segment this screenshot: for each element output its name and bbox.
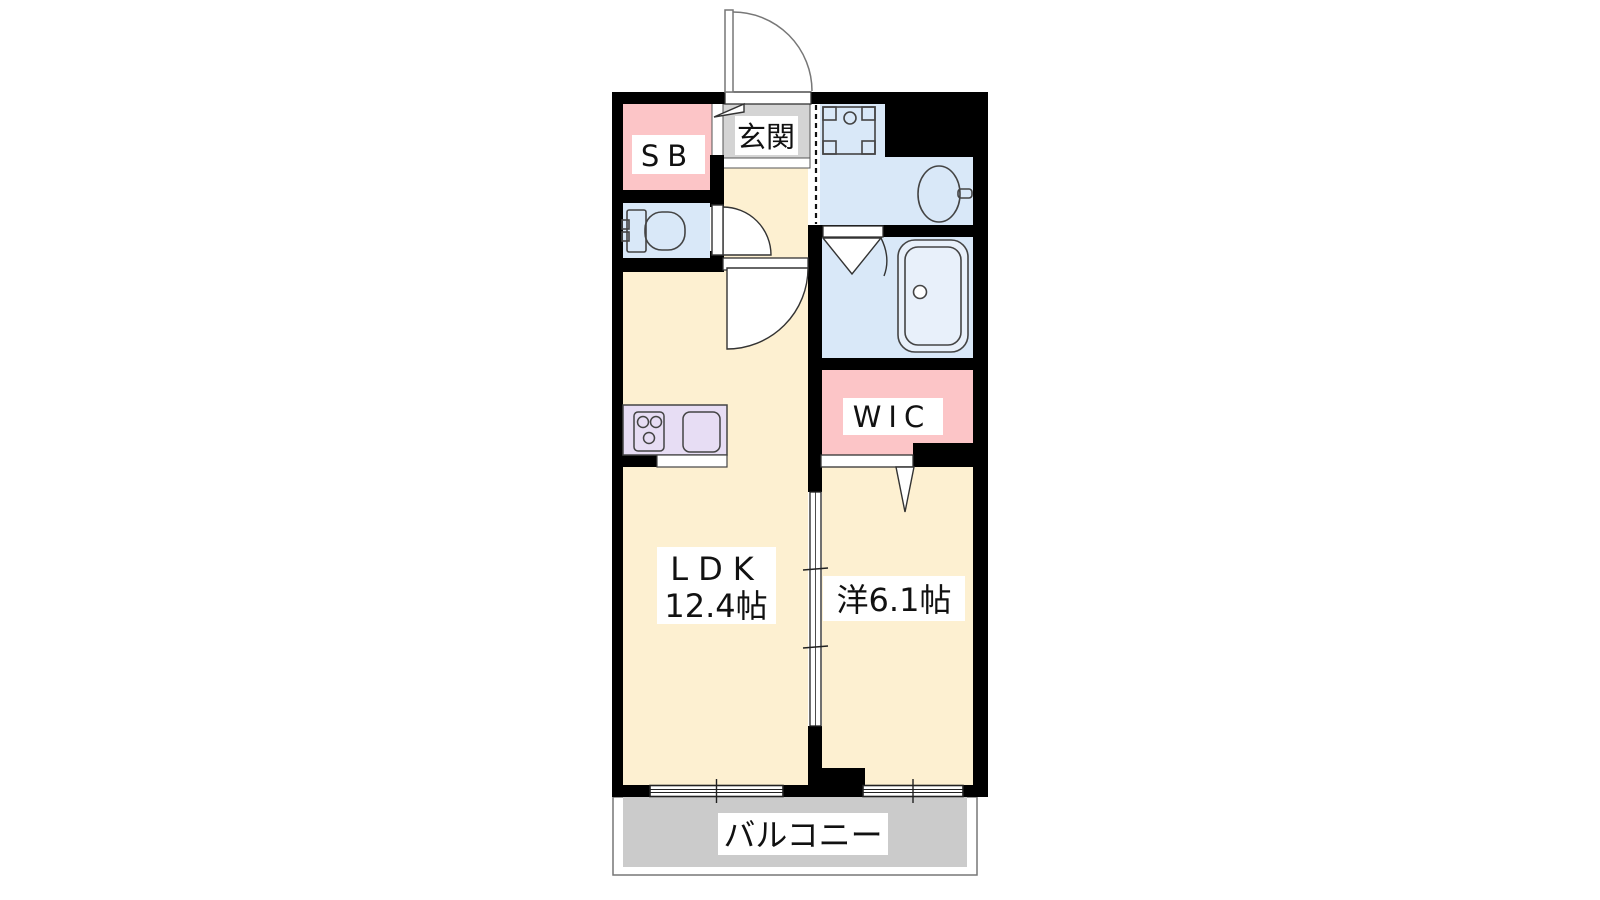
wall-below-shoebox	[612, 190, 712, 203]
opening-entrance	[725, 92, 811, 104]
wall-top-left	[612, 92, 725, 104]
entrance-label-text: 玄関	[737, 120, 795, 154]
kitchen-counter-front	[657, 455, 727, 467]
wall-stub-entrance-left	[710, 155, 724, 207]
wall-wic-corner	[913, 443, 988, 467]
entrance-door-leaf	[725, 10, 733, 92]
label-shoebox: SB	[632, 135, 705, 174]
floor-plan-drawing: SB 玄関 LDK 12.4帖 洋6.1帖 WIC バルコニー	[0, 0, 1600, 900]
floor-plan-page: SB 玄関 LDK 12.4帖 洋6.1帖 WIC バルコニー	[0, 0, 1600, 900]
western-room-label-text: 洋6.1帖	[837, 581, 952, 619]
label-balcony: バルコニー	[718, 813, 888, 855]
ldk-size-text: 12.4帖	[664, 587, 767, 625]
wall-bottom-left-corner	[612, 785, 650, 797]
label-entrance: 玄関	[735, 116, 798, 155]
wall-kitchen-stub	[623, 455, 657, 467]
label-ldk: LDK 12.4帖	[657, 547, 776, 625]
label-western-room: 洋6.1帖	[823, 576, 965, 621]
toilet-door-leaf	[712, 205, 723, 255]
opening-wic	[821, 455, 913, 467]
wall-below-toilet	[612, 258, 723, 272]
room-ldk-floor	[623, 268, 808, 785]
wall-shaft-top-right	[885, 92, 988, 157]
opening-bathroom	[823, 226, 883, 237]
wic-label-text: WIC	[853, 400, 931, 434]
wall-bottom-center	[783, 785, 863, 797]
wall-bottom-right-corner	[963, 785, 988, 797]
shoebox-label-text: SB	[641, 139, 695, 173]
room-western-floor	[822, 467, 973, 785]
balcony-label-text: バルコニー	[723, 816, 882, 854]
ldk-name-text: LDK	[670, 550, 763, 588]
entrance-step-edge	[723, 158, 810, 168]
label-wic: WIC	[843, 398, 943, 435]
wall-below-bathroom	[808, 358, 988, 370]
bathtub-icon	[898, 240, 968, 352]
